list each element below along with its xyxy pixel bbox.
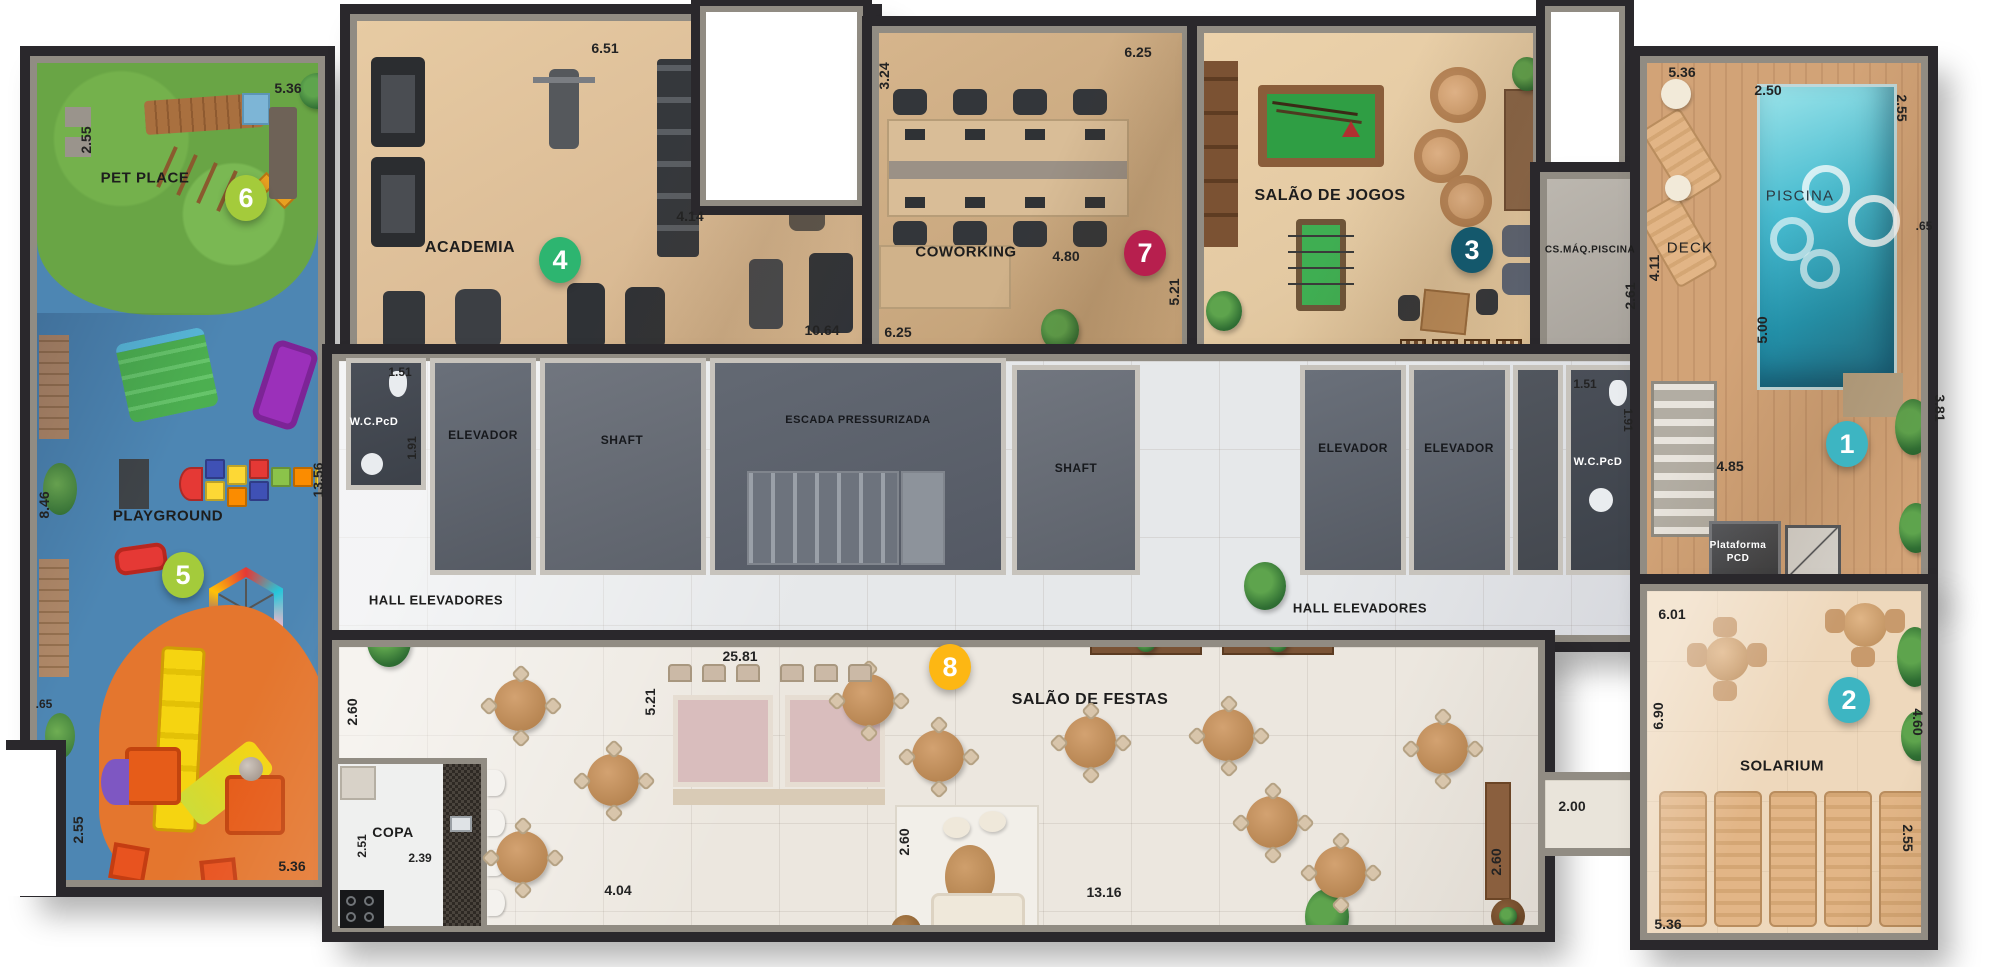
board-game-box [1464,339,1490,354]
dimension-label: 2.55 [78,126,94,153]
dimension-label: 1.91 [1621,408,1635,431]
monitor [1085,129,1105,140]
pool-deck-block [1640,56,1928,586]
chair-wood [1713,681,1737,701]
picnic-table [199,857,239,887]
game-table [1420,289,1470,336]
foosball-table [1296,219,1346,311]
hopscotch-tile [227,487,247,507]
dining-table-round [1246,796,1298,848]
elevator-room-c [1409,365,1510,575]
pcd-lift-platform [1785,525,1841,579]
chair-wood [1747,643,1767,667]
dining-table-round [1064,716,1116,768]
dimension-label: 25.81 [722,648,757,664]
room-label-plataforma-pcd: Plataforma PCD [1707,539,1769,565]
side-table-white [1665,175,1691,201]
room-label-cs-maq-piscina: CS.MÁQ.PISCINA [1545,245,1635,256]
dimension-label: 4.60 [1910,708,1926,735]
deck-lower-ledge [1843,373,1903,417]
sofa [931,893,1025,932]
dimension-label: 2.60 [344,698,360,725]
badge-6-pet-place: 6 [225,175,267,221]
banquet-chair [668,664,692,682]
board-game-box [1496,339,1522,354]
dimension-label: 4.85 [1716,458,1743,474]
pool-table [1258,85,1384,167]
room-label-shaft-left: SHAFT [601,433,644,447]
chair-wood [1885,609,1905,633]
dimension-label: 6.25 [1124,44,1151,60]
room-label-salao-de-jogos: SALÃO DE JOGOS [1254,187,1405,205]
bean-bag [1430,67,1486,123]
gym-machine [455,289,501,349]
dimension-label: 5.21 [642,688,658,715]
plant [1244,562,1286,610]
dimension-label: 6.01 [1658,606,1685,622]
room-label-hall-right: HALL ELEVADORES [1293,601,1427,616]
bench-small [65,107,91,127]
room-label-shaft-right: SHAFT [1055,461,1098,475]
dimension-label: 5.36 [278,858,305,874]
dimension-label: 2.51 [355,834,369,857]
room-label-hall-left: HALL ELEVADORES [369,593,503,608]
dimension-label: .65 [36,697,53,711]
sideboard [1485,782,1511,900]
playground-mat [119,459,149,509]
floor-plan: PET PLACE PLAYGROUND ACADEMIA COWORKING … [0,0,2000,967]
office-chair [1013,221,1047,247]
dimension-label: 4.80 [1052,248,1079,264]
board-game-box [1432,339,1458,354]
exercise-bike [567,283,605,349]
dimension-label: 6.25 [884,324,911,340]
pool-machine-room [1540,172,1640,355]
dimension-label: 2.55 [1900,824,1916,851]
chair [1398,295,1420,321]
coworking-desk [887,119,1129,217]
copa-cabinet [340,766,376,800]
bar-stool [487,890,505,916]
dining-table-round [587,754,639,806]
dimension-label: 3.81 [1932,394,1948,421]
swim-ring [1848,195,1900,247]
hopscotch-tile [205,481,225,501]
dimension-label: .65 [1916,219,1933,233]
swim-ring [1800,249,1840,289]
playground-slide-purple [250,338,320,432]
monitor [1025,197,1045,208]
bistro-table [1843,603,1887,647]
badge-4-academia: 4 [539,237,581,283]
bistro-table [1705,637,1749,681]
treadmill [371,57,425,147]
office-chair [1073,89,1107,115]
room-label-playground: PLAYGROUND [113,508,223,525]
hopscotch-tile [205,459,225,479]
garden-bench [269,107,297,199]
badge-2-solarium: 2 [1828,677,1870,723]
banquet-chair [702,664,726,682]
hopscotch-tile [271,467,291,487]
dimension-label: 13.56 [310,462,326,497]
banquet-chair [814,664,838,682]
coworking-room [872,26,1189,354]
dimension-label: 2.55 [1894,94,1910,121]
sun-lounger [1824,791,1872,927]
pouf [979,811,1006,832]
elevator-room-b [1300,365,1406,575]
copa-stove [340,890,384,928]
play-halfmoon-purple [101,759,129,805]
building-notch [700,6,863,206]
dimension-label: 5.00 [1754,316,1770,343]
picnic-table [108,842,150,884]
dining-table-round [1416,722,1468,774]
dining-table-round [494,679,546,731]
dimension-label: 4.14 [676,208,703,224]
stair-flight [747,471,899,565]
dimension-label: 13.16 [1086,884,1121,900]
dimension-label: 2.39 [408,851,431,865]
dimension-label: 2.50 [1754,82,1781,98]
monitor [905,197,925,208]
deck-stairs [1651,381,1717,537]
room-label-elevador-a: ELEVADOR [448,428,518,442]
dimension-label: 6.51 [591,40,618,56]
chair-wood [1713,617,1737,637]
hopscotch-tile [179,467,203,501]
sun-lounger [1769,791,1817,927]
solarium-passage [1545,772,1645,856]
dining-table-round [1314,846,1366,898]
banquet-chair [780,664,804,682]
desk-divider [889,161,1127,179]
room-label-coworking: COWORKING [915,244,1016,261]
badge-3-jogos: 3 [1451,227,1493,273]
room-label-piscina: PISCINA [1766,188,1834,205]
foosball-field [1302,225,1340,305]
dining-table-round [912,730,964,782]
dimension-label: 4.04 [604,882,631,898]
banquet-chair [736,664,760,682]
hopscotch-tile [249,481,269,501]
shaft-room-left [540,358,706,575]
dimension-label: 2.60 [1488,848,1504,875]
office-chair [953,89,987,115]
service-slot [1513,365,1563,575]
round-table-dark [1491,899,1525,932]
dimension-label: 2.60 [896,828,912,855]
dimension-label: 4.11 [1646,255,1662,281]
gym-machine [383,291,425,349]
bar-stool [487,770,505,796]
dimension-label: 1.51 [1573,377,1596,391]
play-tower [225,775,285,835]
dimension-label: 8.46 [36,491,52,518]
room-label-copa: COPA [372,824,413,840]
room-label-solarium: SOLARIUM [1740,758,1824,775]
pool [1760,87,1894,387]
monitor [1085,197,1105,208]
buffet-table [1090,640,1202,655]
outline-step-cut [6,740,66,896]
treadmill [371,157,425,247]
monitor [965,197,985,208]
dimension-label: 5.36 [1668,64,1695,80]
monitor [1025,129,1045,140]
side-table-white [1661,79,1691,109]
plant [1206,291,1242,331]
bench-long [39,559,69,677]
sun-lounger [1879,791,1927,927]
hopscotch-tile [227,465,247,485]
buffet-table [1222,640,1334,655]
bar-stool [487,810,505,836]
badge-8-festas: 8 [929,644,971,690]
monitor [965,129,985,140]
plant [367,640,411,667]
tall-cabinet [1504,89,1538,211]
pet-place-ramp [242,93,270,125]
plant [1512,57,1540,91]
dimension-label: 5.21 [1166,278,1182,305]
office-chair [1013,89,1047,115]
plant [1895,399,1928,455]
badge-1-piscina: 1 [1826,421,1868,467]
dimension-label: 5.36 [1654,916,1681,932]
chair-wood [1825,609,1845,633]
plant [1899,503,1928,553]
game-shelf-wall [1204,61,1238,247]
weight-bench [749,259,783,329]
copa-counter [443,764,481,926]
dimension-label: 6.90 [1650,702,1666,729]
pressurized-stair-room [710,358,1006,575]
elevator-room-a [430,358,536,575]
gym-machine [809,253,853,333]
banquet-bench [673,789,885,805]
dimension-label: 1.51 [388,365,411,379]
chair-wood [1851,647,1875,667]
bean-bag [1440,175,1492,227]
sun-lounger [1659,791,1707,927]
bench-long [39,335,69,439]
dimension-label: 2.61 [1622,282,1638,309]
chair-wood [1687,643,1707,667]
dining-table-round [1202,709,1254,761]
exercise-bike [625,287,665,349]
dimension-label: 2.00 [1558,798,1585,814]
badge-5-playground: 5 [162,552,204,598]
banquet-chair [848,664,872,682]
sun-lounger [1714,791,1762,927]
wc-pcd-right-room [1566,365,1643,575]
playground-climber [115,327,220,424]
play-tower [125,747,181,805]
sink [1589,488,1613,512]
play-ball-grey [239,757,263,781]
room-label-escada: ESCADA PRESSURIZADA [785,414,930,426]
armchair-grey [1502,225,1538,257]
room-label-pet-place: PET PLACE [101,170,190,187]
building-notch [1545,6,1625,168]
playground-springer-red [113,542,168,577]
armchair-grey [1502,263,1538,295]
room-label-elevador-b: ELEVADOR [1318,441,1388,455]
dimension-label: 2.55 [70,816,86,843]
room-label-elevador-c: ELEVADOR [1424,441,1494,455]
room-label-deck: DECK [1667,240,1713,257]
copa-sink [450,816,472,832]
stair-landing [901,471,945,565]
pouf [943,817,970,838]
office-chair [1073,221,1107,247]
room-label-wc-left: W.C.PcD [350,416,399,428]
dining-table-round [496,831,548,883]
dimension-label: 10.64 [804,322,839,338]
plant [1041,309,1079,351]
dimension-label: 3.24 [876,62,892,89]
dimension-label: 1.91 [405,436,419,459]
chair [1476,289,1498,315]
room-label-academia: ACADEMIA [425,239,515,257]
toilet [1609,380,1627,406]
dimension-label: 5.36 [274,80,301,96]
banquet-table [673,695,773,787]
dumbbell-rack [657,59,699,257]
plant [1897,627,1928,687]
office-chair [893,89,927,115]
badge-7-coworking: 7 [1124,230,1166,276]
sink [361,453,383,475]
monitor [905,129,925,140]
hopscotch-tile [249,459,269,479]
barbell [533,77,595,83]
hopscotch [179,459,325,509]
room-label-wc-right: W.C.PcD [1574,456,1623,468]
board-game-box [1400,339,1426,354]
